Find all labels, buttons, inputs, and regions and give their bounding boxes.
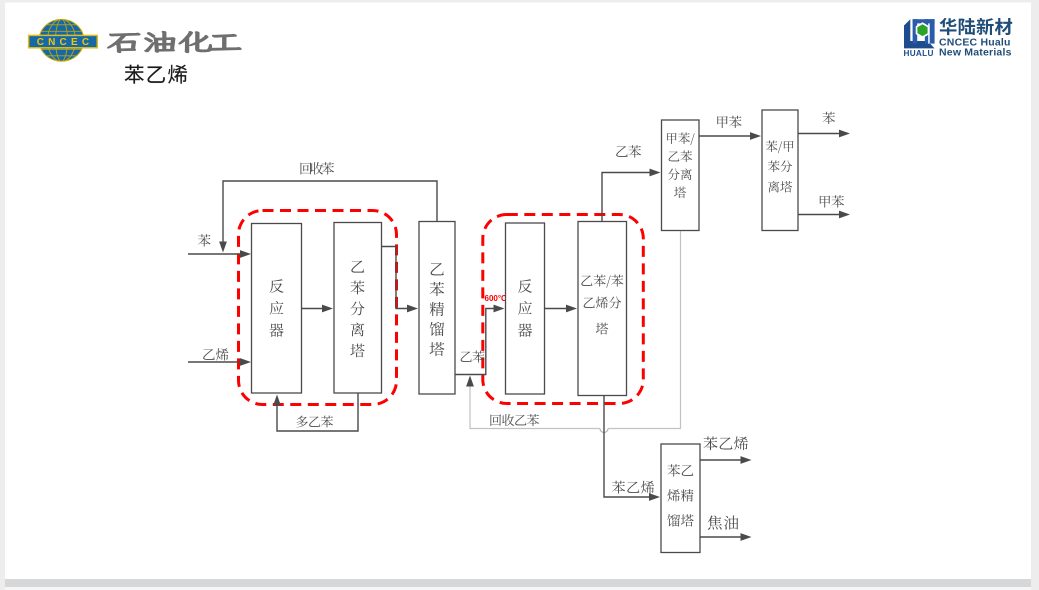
svg-text:New Materials: New Materials	[939, 47, 1012, 59]
svg-text:600°C: 600°C	[485, 294, 508, 303]
svg-text:CNCEC: CNCEC	[37, 37, 94, 48]
svg-text:HUALU: HUALU	[904, 49, 934, 58]
